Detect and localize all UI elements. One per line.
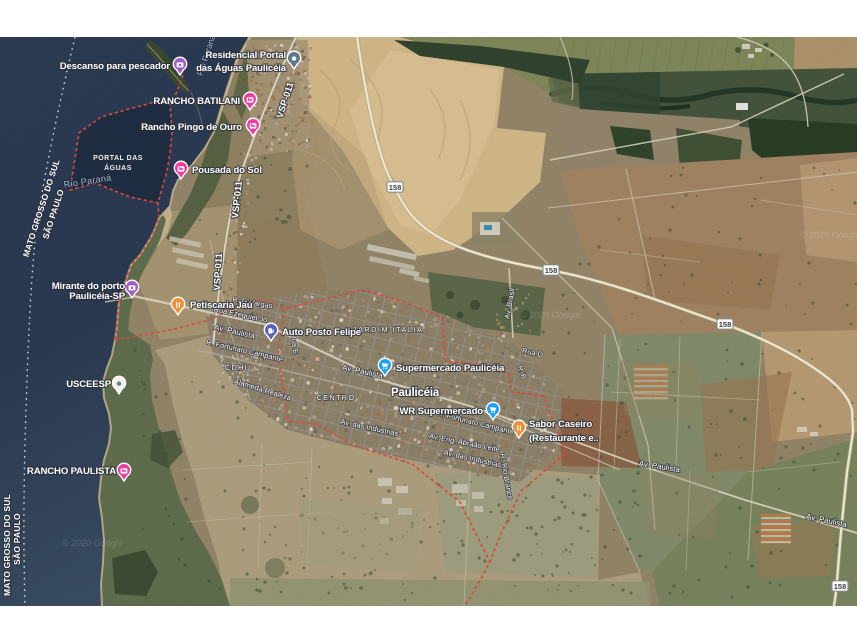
svg-text:Pousada do Sol: Pousada do Sol [192,165,262,176]
svg-text:WR Supermercado: WR Supermercado [399,406,483,417]
svg-text:CENTRO: CENTRO [317,393,356,402]
svg-text:Auto Posto Felipe: Auto Posto Felipe [282,327,361,338]
svg-text:© 2020 Google: © 2020 Google [520,310,581,320]
svg-text:Paulicéia: Paulicéia [391,387,440,399]
svg-text:RANCHO PAULISTA: RANCHO PAULISTA [27,466,116,477]
svg-text:PORTAL DAS: PORTAL DAS [93,155,143,162]
svg-text:USCEESP: USCEESP [66,379,112,390]
svg-text:Petiscaria Jaú: Petiscaria Jaú [190,300,253,311]
svg-text:MATO GROSSO DO SUL: MATO GROSSO DO SUL [2,494,12,596]
svg-text:Sabor Caseiro: Sabor Caseiro [529,419,592,430]
svg-text:VSP-011: VSP-011 [212,252,225,291]
svg-text:© 2020 Google: © 2020 Google [800,230,857,240]
svg-text:SÃO PAULO: SÃO PAULO [12,513,22,565]
svg-text:Supermercado Paulicéia: Supermercado Paulicéia [396,363,505,374]
svg-text:ÁGUAS: ÁGUAS [104,163,132,172]
svg-text:158: 158 [545,266,558,275]
svg-text:Descanso para pescador: Descanso para pescador [60,61,171,72]
svg-text:JARDIM ITALIA: JARDIM ITALIA [353,325,424,334]
svg-text:© 2020 Google: © 2020 Google [62,538,123,548]
svg-text:Paulicéia-SP: Paulicéia-SP [69,291,126,302]
svg-text:das Águas Paulicéia: das Águas Paulicéia [196,62,287,74]
svg-text:158: 158 [719,320,732,329]
svg-text:CDHU: CDHU [225,363,251,372]
svg-text:158: 158 [389,183,402,192]
svg-text:(Restaurante e..: (Restaurante e.. [529,433,599,444]
svg-text:Rancho Pingo de Ouro: Rancho Pingo de Ouro [141,122,242,133]
svg-text:RANCHO BATILANI: RANCHO BATILANI [153,96,240,107]
svg-text:158: 158 [834,582,847,591]
svg-text:Residencial Portal: Residencial Portal [206,50,286,61]
